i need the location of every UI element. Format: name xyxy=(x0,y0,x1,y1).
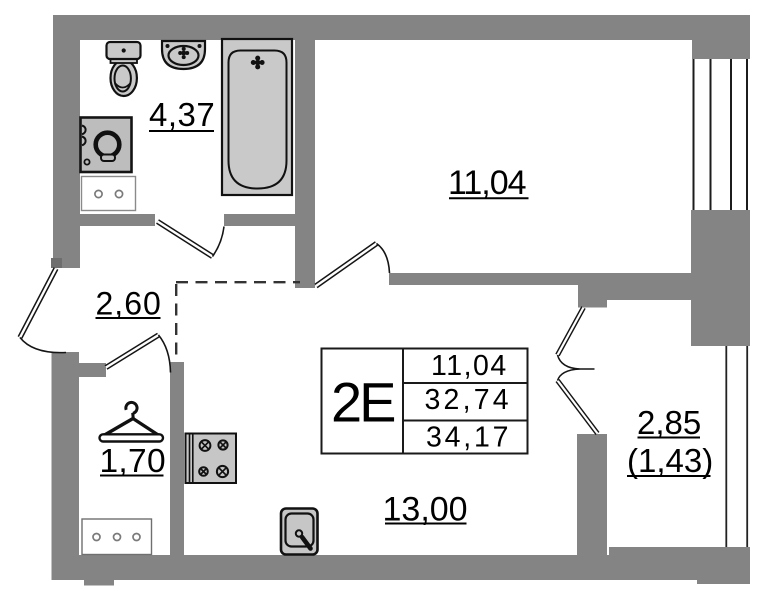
svg-text:4,37: 4,37 xyxy=(149,96,215,133)
svg-text:11,04: 11,04 xyxy=(431,350,508,382)
svg-text:34,17: 34,17 xyxy=(426,422,511,454)
svg-text:2,60: 2,60 xyxy=(96,286,162,322)
svg-text:1,70: 1,70 xyxy=(100,443,166,480)
svg-text:(1,43): (1,43) xyxy=(627,442,713,479)
svg-text:32,74: 32,74 xyxy=(425,384,512,416)
svg-text:11,04: 11,04 xyxy=(448,164,526,202)
svg-text:2Е: 2Е xyxy=(331,371,394,434)
svg-text:2,85: 2,85 xyxy=(637,404,701,441)
